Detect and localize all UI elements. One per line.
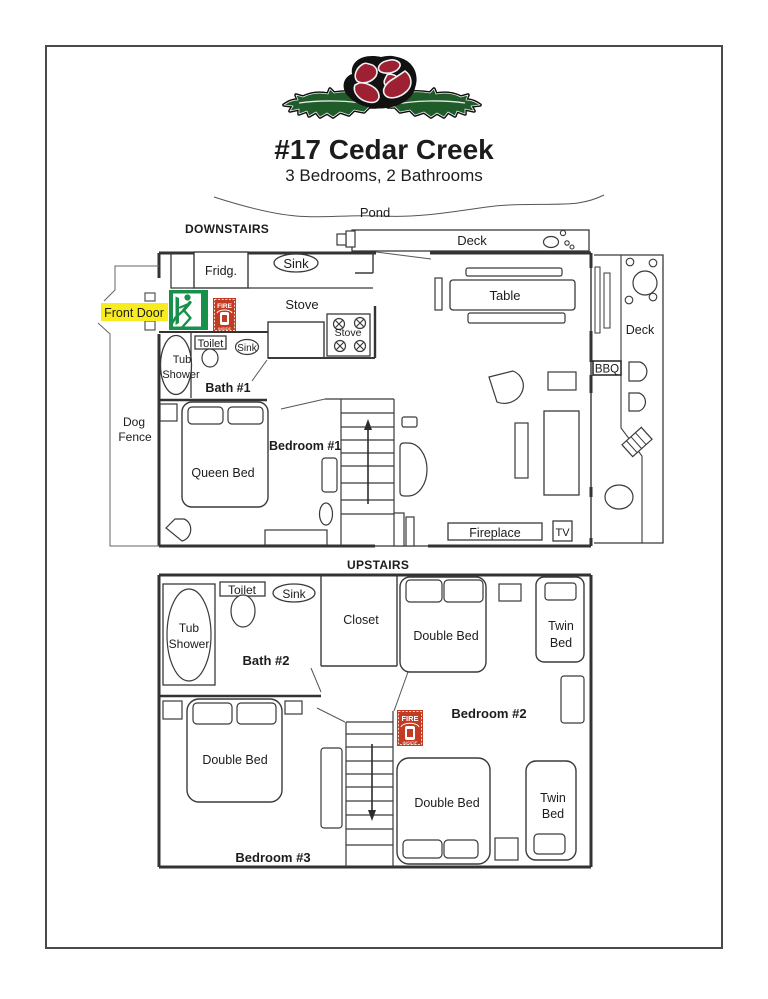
- svg-text:INSIDE: INSIDE: [402, 741, 417, 746]
- svg-text:INSIDE: INSIDE: [218, 326, 232, 331]
- svg-text:Tub: Tub: [173, 354, 192, 366]
- svg-text:Bath #1: Bath #1: [205, 381, 250, 395]
- svg-text:Stove: Stove: [335, 327, 362, 339]
- svg-text:Fridg.: Fridg.: [205, 264, 237, 278]
- svg-text:Double Bed: Double Bed: [414, 796, 479, 810]
- svg-text:Shower: Shower: [162, 369, 200, 381]
- svg-text:UPSTAIRS: UPSTAIRS: [347, 558, 409, 572]
- svg-text:Tub: Tub: [179, 621, 200, 635]
- svg-text:Twin: Twin: [548, 619, 574, 633]
- svg-text:Table: Table: [489, 288, 520, 303]
- svg-text:3 Bedrooms, 2 Bathrooms: 3 Bedrooms, 2 Bathrooms: [285, 166, 482, 185]
- svg-text:Closet: Closet: [343, 613, 379, 627]
- svg-text:Sink: Sink: [283, 256, 309, 271]
- svg-text:Fireplace: Fireplace: [469, 526, 520, 540]
- svg-text:Deck: Deck: [626, 323, 655, 337]
- svg-text:#17 Cedar Creek: #17 Cedar Creek: [274, 134, 494, 165]
- svg-text:Double Bed: Double Bed: [202, 753, 267, 767]
- svg-text:Front Door: Front Door: [104, 306, 164, 320]
- svg-text:DOWNSTAIRS: DOWNSTAIRS: [185, 222, 269, 236]
- svg-text:Sink: Sink: [282, 587, 306, 601]
- svg-text:Queen Bed: Queen Bed: [191, 466, 254, 480]
- svg-text:Toilet: Toilet: [198, 338, 224, 350]
- svg-text:Bed: Bed: [550, 636, 572, 650]
- svg-text:BBQ: BBQ: [595, 364, 619, 376]
- svg-text:Dog: Dog: [123, 415, 145, 429]
- svg-text:Bath #2: Bath #2: [243, 653, 290, 668]
- svg-text:Fence: Fence: [118, 430, 152, 444]
- svg-text:Pond: Pond: [360, 205, 390, 220]
- svg-text:Deck: Deck: [457, 233, 487, 248]
- svg-text:Stove: Stove: [285, 297, 318, 312]
- svg-text:Sink: Sink: [237, 343, 257, 354]
- svg-text:Twin: Twin: [540, 791, 566, 805]
- svg-text:FIRE: FIRE: [217, 303, 232, 310]
- svg-text:TV: TV: [555, 527, 570, 539]
- svg-text:Shower: Shower: [169, 637, 210, 651]
- svg-text:Double Bed: Double Bed: [413, 629, 478, 643]
- svg-text:Bedroom #2: Bedroom #2: [451, 706, 526, 721]
- svg-text:FIRE: FIRE: [401, 714, 418, 723]
- svg-text:Bed: Bed: [542, 807, 564, 821]
- svg-text:Bedroom #3: Bedroom #3: [235, 850, 310, 865]
- svg-text:Bedroom #1: Bedroom #1: [269, 439, 341, 453]
